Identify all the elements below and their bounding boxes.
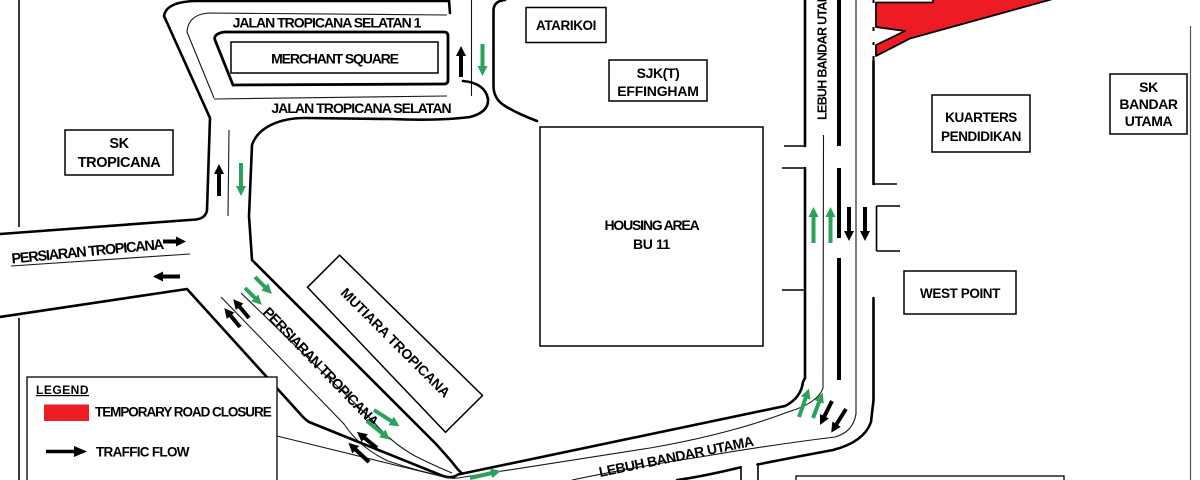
svg-text:UTAMA: UTAMA bbox=[1125, 113, 1173, 129]
svg-text:ATARIKOI: ATARIKOI bbox=[536, 18, 596, 33]
svg-text:JALAN TROPICANA SELATAN: JALAN TROPICANA SELATAN bbox=[271, 100, 451, 116]
svg-text:BU 11: BU 11 bbox=[633, 236, 671, 252]
svg-text:EFFINGHAM: EFFINGHAM bbox=[617, 83, 698, 99]
svg-text:TROPICANA: TROPICANA bbox=[78, 155, 162, 171]
svg-text:SK: SK bbox=[109, 136, 129, 152]
svg-text:TRAFFIC FLOW: TRAFFIC FLOW bbox=[96, 445, 190, 460]
svg-text:TEMPORARY ROAD CLOSURE: TEMPORARY ROAD CLOSURE bbox=[95, 405, 272, 420]
svg-text:BANDAR: BANDAR bbox=[1119, 96, 1178, 112]
svg-text:SK: SK bbox=[1139, 79, 1158, 95]
svg-text:WEST POINT: WEST POINT bbox=[920, 286, 1001, 301]
svg-text:LEGEND: LEGEND bbox=[36, 383, 89, 397]
svg-text:LEBUH BANDAR UTAMA: LEBUH BANDAR UTAMA bbox=[816, 0, 830, 120]
svg-text:KUARTERS: KUARTERS bbox=[945, 110, 1017, 125]
svg-text:HOUSING AREA: HOUSING AREA bbox=[605, 217, 700, 233]
svg-text:SJK(T): SJK(T) bbox=[637, 65, 680, 81]
svg-text:MERCHANT SQUARE: MERCHANT SQUARE bbox=[271, 51, 398, 67]
svg-text:PENDIDIKAN: PENDIDIKAN bbox=[941, 129, 1021, 144]
svg-text:JALAN TROPICANA SELATAN 1: JALAN TROPICANA SELATAN 1 bbox=[233, 15, 422, 31]
